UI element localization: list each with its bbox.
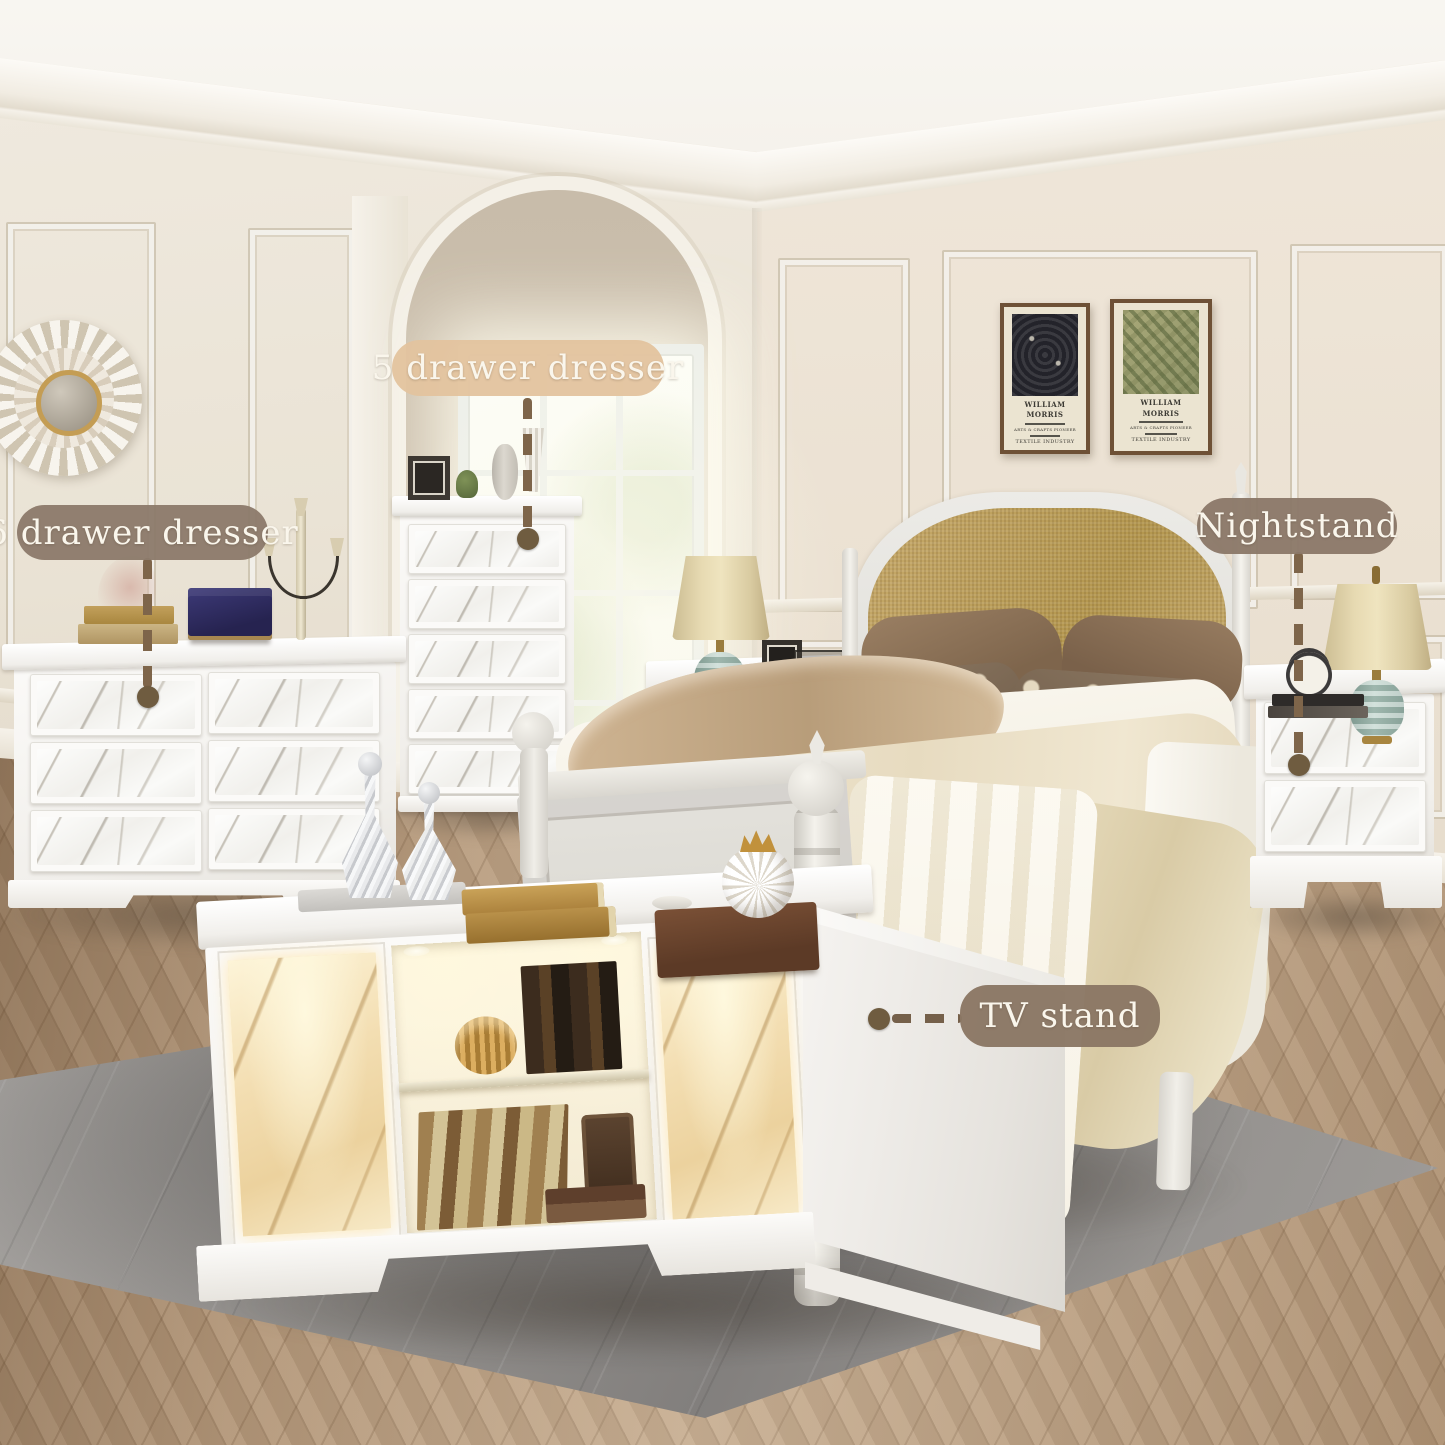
marble-drawer-front — [1271, 787, 1419, 845]
tv-cabinet-door-left — [217, 942, 401, 1247]
six-drawer-connector-line — [143, 558, 152, 688]
label-nightstand: Nightstand — [1197, 498, 1397, 554]
label-text: Nightstand — [1196, 506, 1399, 546]
label-text: TV stand — [979, 996, 1140, 1036]
picture-frame — [408, 456, 450, 500]
dresser-drawer — [30, 674, 202, 736]
led-light — [403, 945, 430, 956]
marble-drawer-front — [415, 586, 559, 622]
poster-caption-bar — [1025, 423, 1065, 425]
label-text: 6 drawer dresser — [0, 513, 299, 553]
blue-jewelry-box — [188, 588, 272, 640]
marble-drawer-front — [215, 679, 373, 727]
marble-drawer-front — [37, 681, 195, 729]
dresser-drawer — [208, 672, 380, 734]
marble-drawer-front — [215, 747, 373, 795]
poster-subtitle: ARTS & CRAFTS PIONEER — [1011, 427, 1079, 433]
poster-title: WILLIAM MORRIS — [1011, 400, 1079, 421]
book-stack — [1268, 706, 1368, 718]
marble-drawer-front — [37, 749, 195, 797]
chest-drawer — [408, 524, 566, 574]
chest-drawer — [408, 634, 566, 684]
label-six-drawer-dresser: 6 drawer dresser — [17, 505, 268, 560]
mirror-glass — [36, 370, 102, 436]
marble-drawer-front — [37, 817, 195, 865]
book-stack — [84, 606, 174, 624]
poster-title: WILLIAM MORRIS — [1121, 398, 1201, 419]
tv-stand-connector-line — [892, 1014, 962, 1023]
tv-stand-connector-dot — [868, 1008, 890, 1030]
poster-caption-bar — [1030, 435, 1060, 437]
wall-art-right: WILLIAM MORRIS ARTS & CRAFTS PIONEER TEX… — [1110, 299, 1212, 455]
lamp-shade — [672, 556, 770, 640]
wall-art-left: WILLIAM MORRIS ARTS & CRAFTS PIONEER TEX… — [1000, 303, 1090, 454]
lamp-shade — [1322, 584, 1432, 670]
book-stack — [78, 624, 178, 644]
wooden-box — [654, 902, 819, 978]
bed-leg — [1156, 1071, 1194, 1190]
dresser-drawer — [30, 810, 202, 872]
lamp-finial — [1372, 566, 1380, 584]
marble-drawer-front — [415, 641, 559, 677]
poster-footer: TEXTILE INDUSTRY — [1121, 437, 1201, 445]
shelf-books-dark — [521, 961, 623, 1074]
label-five-drawer-dresser: 5 drawer dresser — [392, 340, 664, 396]
poster-caption-bar — [1145, 433, 1177, 435]
five-drawer-connector-dot — [517, 528, 539, 550]
poster-text: WILLIAM MORRIS ARTS & CRAFTS PIONEER TEX… — [1011, 400, 1079, 447]
poster-caption-bar — [1139, 421, 1183, 423]
poster-text: WILLIAM MORRIS ARTS & CRAFTS PIONEER TEX… — [1121, 398, 1201, 445]
lit-marble-panel — [658, 940, 799, 1221]
tv-cabinet-opening — [391, 932, 657, 1234]
five-drawer-connector-line — [523, 398, 532, 530]
nightstand-connector-dot — [1288, 754, 1310, 776]
book-stack — [1272, 694, 1364, 706]
lit-marble-panel — [228, 952, 391, 1236]
dresser-drawer — [30, 742, 202, 804]
label-text: 5 drawer dresser — [372, 348, 684, 388]
poster-artwork-floral — [1012, 314, 1078, 396]
decanter-stopper — [358, 752, 382, 776]
gold-ribbed-vase — [453, 1015, 518, 1076]
potted-plant — [456, 470, 478, 498]
alarm-clock — [1286, 652, 1332, 698]
decanter-stopper — [418, 782, 440, 804]
bedroom-product-photo: WILLIAM MORRIS ARTS & CRAFTS PIONEER TEX… — [0, 0, 1445, 1445]
turned-post-ball — [788, 760, 844, 816]
poster-footer: TEXTILE INDUSTRY — [1011, 439, 1079, 447]
label-tv-stand: TV stand — [960, 985, 1160, 1047]
six-drawer-connector-dot — [137, 686, 159, 708]
nightstand-drawer — [1264, 780, 1426, 852]
glass-shelf — [399, 1069, 649, 1092]
foot-post — [520, 748, 548, 878]
stacked-books — [545, 1184, 647, 1224]
nightstand-connector-line — [1294, 552, 1303, 756]
poster-subtitle: ARTS & CRAFTS PIONEER — [1121, 425, 1201, 431]
dresser-drawer — [208, 740, 380, 802]
spiral-shell-ornament — [722, 846, 794, 918]
lamp-foot — [1362, 736, 1392, 744]
poster-artwork-acanthus — [1123, 310, 1199, 394]
gray-vase — [492, 444, 518, 500]
chest-drawer — [408, 579, 566, 629]
